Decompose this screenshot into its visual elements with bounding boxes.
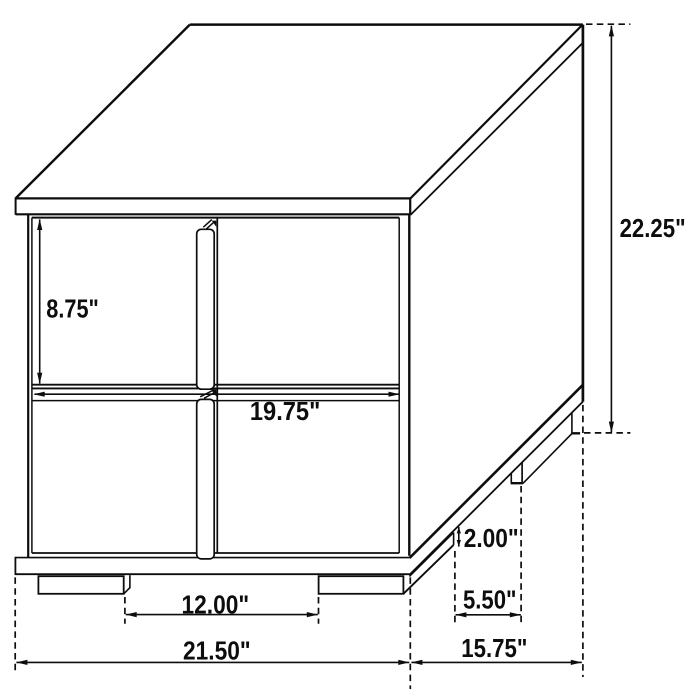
- svg-text:12.00": 12.00": [182, 591, 250, 619]
- svg-text:19.75": 19.75": [250, 398, 320, 426]
- svg-text:2.00": 2.00": [464, 525, 519, 553]
- svg-text:15.75": 15.75": [461, 635, 527, 663]
- svg-text:5.50": 5.50": [463, 586, 517, 614]
- svg-text:8.75": 8.75": [46, 295, 99, 323]
- svg-text:22.25": 22.25": [620, 215, 686, 243]
- svg-text:21.50": 21.50": [183, 638, 251, 666]
